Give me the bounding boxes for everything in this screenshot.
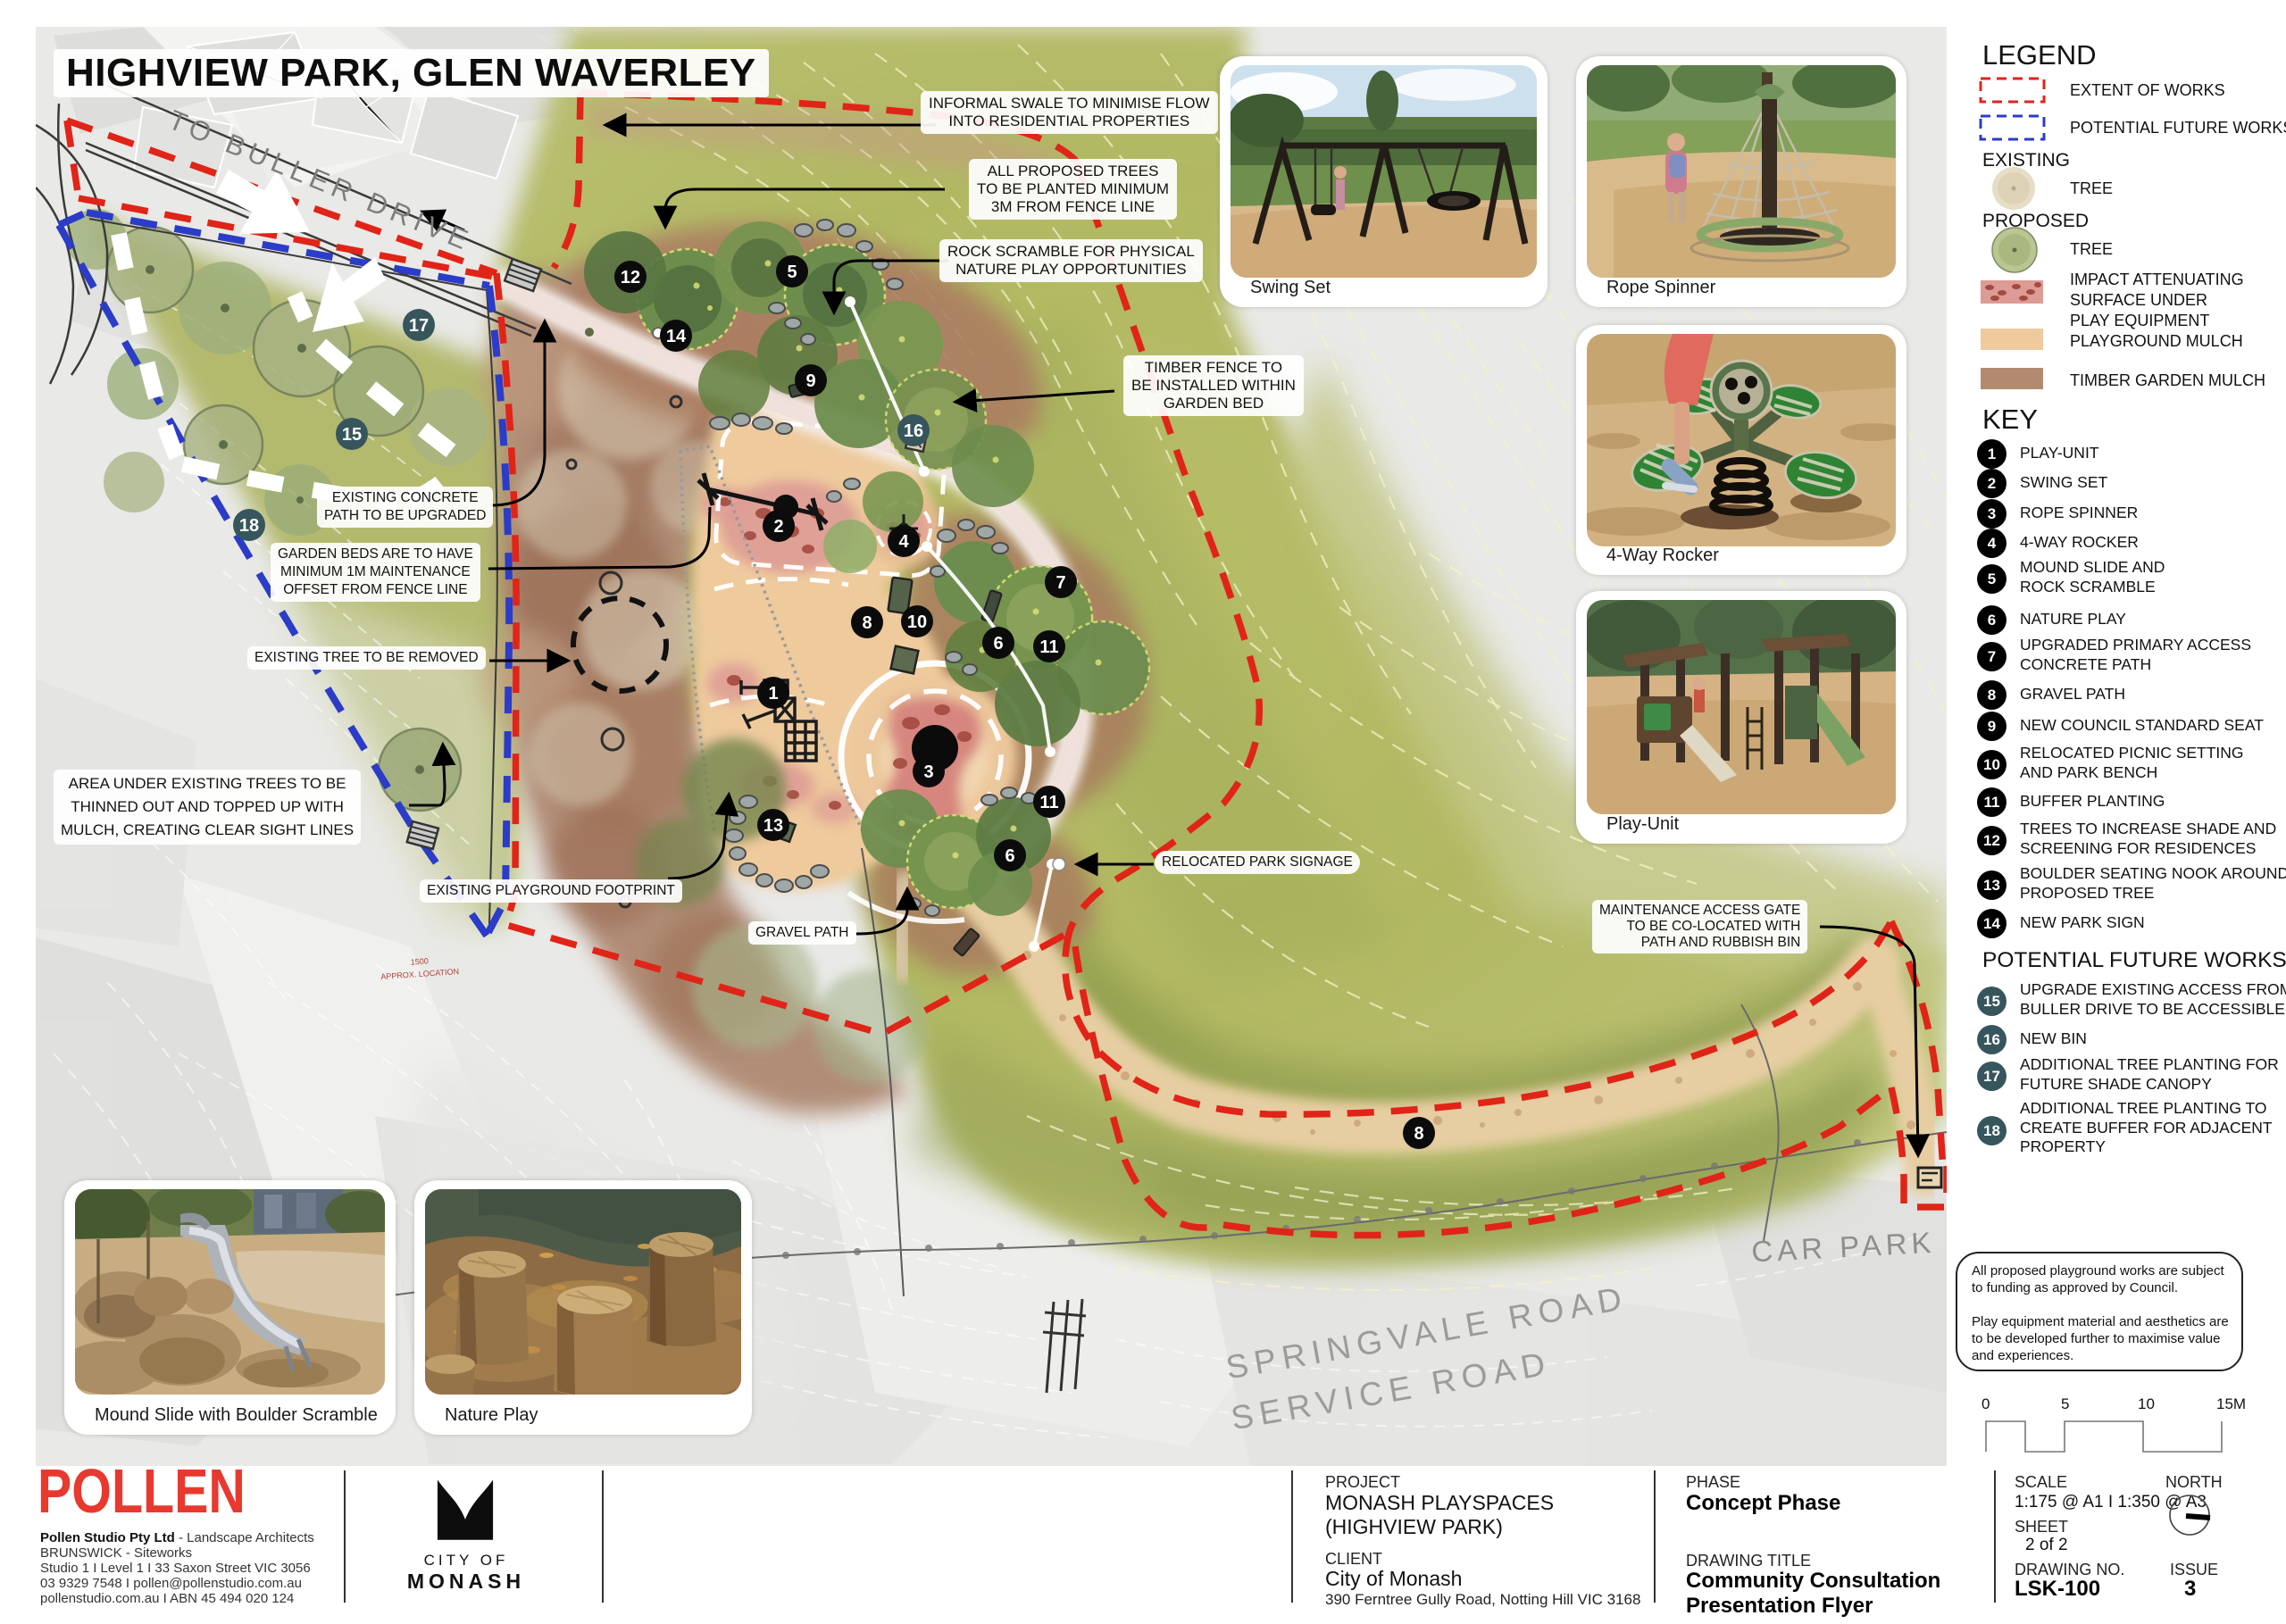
svg-text:11: 11 bbox=[1039, 793, 1058, 812]
svg-text:0: 0 bbox=[1981, 1395, 1990, 1412]
svg-text:10: 10 bbox=[907, 612, 927, 632]
svg-text:6: 6 bbox=[993, 634, 1003, 654]
svg-text:14: 14 bbox=[666, 327, 687, 346]
svg-text:1500: 1500 bbox=[410, 956, 429, 966]
svg-text:10: 10 bbox=[2138, 1395, 2155, 1412]
svg-text:6: 6 bbox=[1005, 846, 1014, 866]
svg-text:4: 4 bbox=[898, 532, 909, 552]
svg-text:11: 11 bbox=[1039, 637, 1058, 657]
svg-text:5: 5 bbox=[787, 262, 797, 282]
svg-text:12: 12 bbox=[621, 268, 640, 287]
svg-text:2: 2 bbox=[773, 517, 783, 537]
svg-text:18: 18 bbox=[239, 516, 259, 536]
svg-text:13: 13 bbox=[763, 816, 783, 836]
svg-text:8: 8 bbox=[1414, 1124, 1423, 1144]
svg-text:15: 15 bbox=[342, 425, 362, 445]
svg-text:3: 3 bbox=[923, 762, 933, 782]
svg-text:15M: 15M bbox=[2216, 1395, 2246, 1412]
svg-text:9: 9 bbox=[805, 371, 815, 391]
svg-text:17: 17 bbox=[409, 316, 429, 336]
svg-text:1: 1 bbox=[768, 684, 778, 704]
svg-text:5: 5 bbox=[2061, 1395, 2069, 1412]
svg-text:7: 7 bbox=[1055, 573, 1065, 593]
svg-text:16: 16 bbox=[904, 421, 923, 441]
svg-text:8: 8 bbox=[862, 613, 872, 633]
